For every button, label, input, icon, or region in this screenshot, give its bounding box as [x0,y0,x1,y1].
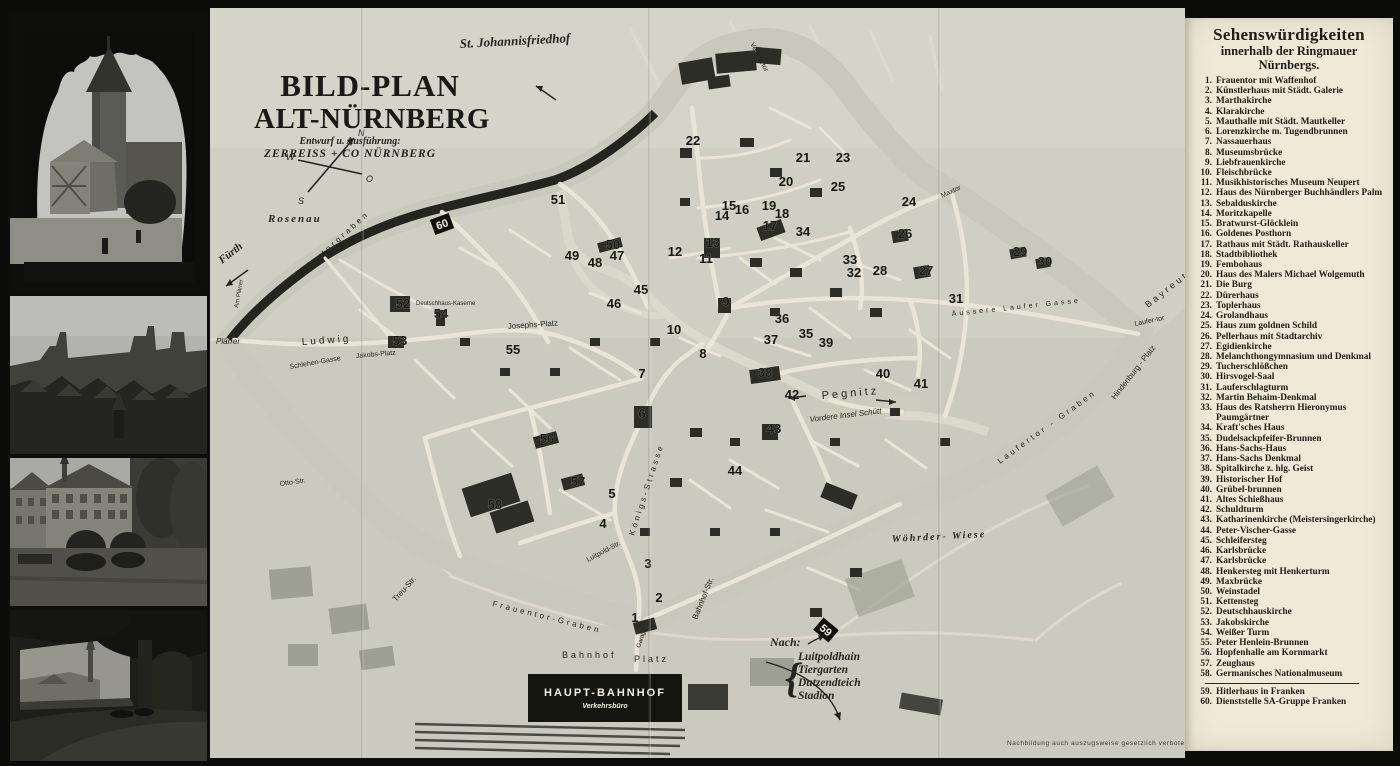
legend-item-label: Hans-Sachs-Haus [1216,444,1387,454]
legend-item-number: 50. [1195,587,1212,597]
legend-item-4: 4.Klarakirche [1195,107,1387,117]
legend-item-label: Katharinenkirche (Meistersingerkirche) [1216,515,1387,525]
map-marker-21: 21 [796,150,810,165]
legend-item-3: 3.Marthakirche [1195,96,1387,106]
map-panel: HAUPT-BAHNHOF Verkehrsbüro N S W O BILD-… [210,8,1185,758]
legend-item-label: Schuldturm [1216,505,1387,515]
nach-intro: Nach: [769,635,801,649]
legend-item-41: 41.Altes Schießhaus [1195,495,1387,505]
legend-item-label: Weißer Turm [1216,628,1387,638]
legend-item-21: 21.Die Burg [1195,280,1387,290]
legend-item-number: 27. [1195,342,1212,352]
legend-subtitle-2: Nürnbergs. [1185,58,1393,72]
legend-item-54: 54.Weißer Turm [1195,628,1387,638]
legend-list: 1.Frauentor mit Waffenhof2.Künstlerhaus … [1185,75,1393,707]
map-marker-28: 28 [873,263,887,278]
map-label: Bahnhof [562,650,617,660]
legend-item-number: 33. [1195,403,1212,423]
map-marker-35: 35 [799,326,813,341]
legend-item-label: Karlsbrücke [1216,546,1387,556]
legend-item-number: 40. [1195,485,1212,495]
legend-item-number: 23. [1195,301,1212,311]
legend-item-number: 20. [1195,270,1212,280]
legend-item-14: 14.Moritzkapelle [1195,209,1387,219]
map-subtitle-1: Entwurf u. Ausführung: [298,136,400,147]
legend-item-25: 25.Haus zum goldnen Schild [1195,321,1387,331]
legend-item-number: 42. [1195,505,1212,515]
photo-sinwellturm-through-arch [10,12,207,294]
legend-item-8: 8.Museumsbrücke [1195,148,1387,158]
legend-item-number: 1. [1195,76,1212,86]
legend-item-23: 23.Toplerhaus [1195,301,1387,311]
legend-item-number: 57. [1195,659,1212,669]
legend-item-label: Grübel-brunnen [1216,485,1387,495]
map-marker-7: 7 [638,366,645,381]
map-marker-12: 12 [668,244,682,259]
map-marker-33: 33 [843,252,857,267]
legend-item-number: 48. [1195,567,1212,577]
legend-item-number: 3. [1195,96,1212,106]
legend-item-11: 11.Musikhistorisches Museum Neupert [1195,178,1387,188]
photo-heilig-geist-spital [10,458,207,606]
nach-destination: Tiergarten [798,664,848,676]
legend-item-number: 39. [1195,475,1212,485]
legend-item-number: 2. [1195,86,1212,96]
legend-item-33: 33.Haus des Ratsherrn Hieronymus Paumgär… [1195,403,1387,423]
legend-item-number: 38. [1195,464,1212,474]
legend-item-44: 44.Peter-Vischer-Gasse [1195,526,1387,536]
legend-item-label: Pellerhaus mit Stadtarchiv [1216,332,1387,342]
legend-item-label: Die Burg [1216,280,1387,290]
map-marker-43: 43 [767,421,781,436]
legend-item-label: Lorenzkirche m. Tugendbrunnen [1216,127,1387,137]
legend-item-label: Mauthalle mit Städt. Mautkeller [1216,117,1387,127]
scanned-leaflet: HAUPT-BAHNHOF Verkehrsbüro N S W O BILD-… [0,0,1400,766]
legend-item-number: 12. [1195,188,1212,198]
map-marker-37: 37 [764,332,778,347]
legend-item-number: 32. [1195,393,1212,403]
legend-title: Sehenswürdigkeiten [1185,18,1393,44]
legend-item-label: Goldenes Posthorn [1216,229,1387,239]
legend-item-9: 9.Liebfrauenkirche [1195,158,1387,168]
legend-item-number: 31. [1195,383,1212,393]
legend-item-48: 48.Henkersteg mit Henkerturm [1195,567,1387,577]
map-marker-49: 49 [565,248,579,263]
map-marker-6: 6 [638,406,645,421]
legend-panel: Sehenswürdigkeiten innerhalb der Ringmau… [1185,18,1393,751]
legend-item-28: 28.Melanchthongymnasium und Denkmal [1195,352,1387,362]
map-marker-41: 41 [914,376,928,391]
map-subtitle-2: ZERREISS + CO NÜRNBERG [263,146,436,160]
map-marker-54: 54 [434,306,449,321]
legend-item-number: 6. [1195,127,1212,137]
map-marker-58: 58 [488,497,502,512]
legend-item-label: Henkersteg mit Henkerturm [1216,567,1387,577]
map-marker-34: 34 [796,224,811,239]
legend-item-7: 7.Nassauerhaus [1195,137,1387,147]
legend-item-34: 34.Kraft'sches Haus [1195,423,1387,433]
legend-item-number: 37. [1195,454,1212,464]
map-marker-16: 16 [735,202,749,217]
legend-item-label: Melanchthongymnasium und Denkmal [1216,352,1387,362]
map-marker-5: 5 [608,486,615,501]
legend-item-label: Moritzkapelle [1216,209,1387,219]
legend-item-number: 18. [1195,250,1212,260]
legend-item-number: 60. [1195,697,1212,707]
legend-item-number: 13. [1195,199,1212,209]
legend-item-31: 31.Lauferschlagturm [1195,383,1387,393]
legend-item-number: 44. [1195,526,1212,536]
legend-item-51: 51.Kettensteg [1195,597,1387,607]
map-marker-38: 38 [758,365,772,380]
map-marker-57: 57 [571,474,585,489]
compass-o: O [366,174,373,184]
map-label: Platz [634,654,669,664]
legend-item-label: Haus zum goldnen Schild [1216,321,1387,331]
photo-3-art [10,458,207,606]
legend-item-label: Hopfenhalle am Kornmarkt [1216,648,1387,658]
legend-item-label: Tucherschlößchen [1216,362,1387,372]
legend-item-label: Egidienkirche [1216,342,1387,352]
legend-item-37: 37.Hans-Sachs Denkmal [1195,454,1387,464]
legend-item-number: 35. [1195,434,1212,444]
legend-item-24: 24.Grolandhaus [1195,311,1387,321]
legend-item-label: Kettensteg [1216,597,1387,607]
legend-item-number: 26. [1195,332,1212,342]
legend-item-12: 12.Haus des Nürnberger Buchhändlers Palm [1195,188,1387,198]
legend-item-label: Haus des Nürnberger Buchhändlers Palm [1216,188,1387,198]
legend-item-label: Schleifersteg [1216,536,1387,546]
legend-item-number: 43. [1195,515,1212,525]
legend-item-15: 15.Bratwurst-Glöcklein [1195,219,1387,229]
legend-item-50: 50.Weinstadel [1195,587,1387,597]
legend-item-label: Grolandhaus [1216,311,1387,321]
photo-park-terrace [10,610,207,761]
map-marker-1: 1 [631,610,638,625]
legend-item-label: Frauentor mit Waffenhof [1216,76,1387,86]
legend-item-label: Klarakirche [1216,107,1387,117]
photo-2-art [10,296,207,454]
map-marker-19: 19 [762,198,776,213]
legend-item-label: Musikhistorisches Museum Neupert [1216,178,1387,188]
legend-item-number: 4. [1195,107,1212,117]
legend-divider [1205,683,1359,684]
map-marker-51: 51 [551,192,565,207]
legend-item-label: Museumsbrücke [1216,148,1387,158]
legend-item-number: 34. [1195,423,1212,433]
map-marker-44: 44 [728,463,743,478]
map-marker-30: 30 [1038,254,1052,269]
legend-item-30: 30.Hirsvogel-Saal [1195,372,1387,382]
legend-item-label: Jakobskirche [1216,618,1387,628]
map-marker-39: 39 [819,335,833,350]
legend-item-number: 8. [1195,148,1212,158]
legend-item-39: 39.Historischer Hof [1195,475,1387,485]
legend-item-number: 11. [1195,178,1212,188]
legend-item-label: Bratwurst-Glöcklein [1216,219,1387,229]
legend-item-56: 56.Hopfenhalle am Kornmarkt [1195,648,1387,658]
map-marker-36: 36 [775,311,789,326]
legend-item-16: 16.Goldenes Posthorn [1195,229,1387,239]
legend-item-number: 25. [1195,321,1212,331]
fold-crease-1 [361,8,364,758]
legend-item-label: Rathaus mit Städt. Rathauskeller [1216,240,1387,250]
legend-item-6: 6.Lorenzkirche m. Tugendbrunnen [1195,127,1387,137]
photo-4-art [10,610,207,761]
legend-item-number: 41. [1195,495,1212,505]
map-marker-2: 2 [655,590,662,605]
legend-item-number: 52. [1195,607,1212,617]
legend-item-49: 49.Maxbrücke [1195,577,1387,587]
legend-item-number: 47. [1195,556,1212,566]
legend-item-label: Marthakirche [1216,96,1387,106]
fine-print: Nachbildung auch auszugsweise gesetzlich… [1007,740,1185,747]
legend-item-number: 30. [1195,372,1212,382]
map-marker-40: 40 [876,366,890,381]
legend-item-label: Hitlerhaus in Franken [1216,687,1387,697]
legend-item-27: 27.Egidienkirche [1195,342,1387,352]
legend-item-number: 55. [1195,638,1212,648]
legend-item-label: Zeughaus [1216,659,1387,669]
legend-item-35: 35.Dudelsackpfeifer-Brunnen [1195,434,1387,444]
photo-strip [8,8,210,757]
map-marker-13: 13 [706,235,720,250]
map-marker-52: 52 [396,296,410,311]
legend-item-20: 20.Haus des Malers Michael Wolgemuth [1195,270,1387,280]
legend-item-number: 58. [1195,669,1212,679]
legend-item-60: 60.Dienststelle SA-Gruppe Franken [1195,697,1387,707]
map-marker-42: 42 [785,387,799,402]
map-marker-45: 45 [634,282,648,297]
map-marker-56: 56 [540,431,554,446]
map-marker-29: 29 [1013,244,1027,259]
legend-item-label: Deutschhauskirche [1216,607,1387,617]
legend-item-label: Martin Behaim-Denkmal [1216,393,1387,403]
legend-item-label: Kraft'sches Haus [1216,423,1387,433]
nach-destination: Luitpoldhain [797,651,860,663]
legend-item-36: 36.Hans-Sachs-Haus [1195,444,1387,454]
map-marker-20: 20 [779,174,793,189]
fold-crease-2 [648,8,651,758]
legend-item-label: Liebfrauenkirche [1216,158,1387,168]
legend-item-number: 54. [1195,628,1212,638]
legend-item-label: Toplerhaus [1216,301,1387,311]
legend-item-number: 46. [1195,546,1212,556]
legend-item-number: 24. [1195,311,1212,321]
legend-item-number: 16. [1195,229,1212,239]
legend-item-26: 26.Pellerhaus mit Stadtarchiv [1195,332,1387,342]
map-marker-23: 23 [836,150,850,165]
legend-item-number: 59. [1195,687,1212,697]
legend-item-number: 45. [1195,536,1212,546]
legend-item-number: 21. [1195,280,1212,290]
map-marker-25: 25 [831,179,845,194]
legend-item-label: Karlsbrücke [1216,556,1387,566]
legend-item-label: Dürerhaus [1216,291,1387,301]
legend-item-label: Fleischbrücke [1216,168,1387,178]
legend-item-number: 53. [1195,618,1212,628]
legend-item-label: Altes Schießhaus [1216,495,1387,505]
map-marker-22: 22 [686,133,700,148]
legend-item-number: 56. [1195,648,1212,658]
legend-item-18: 18.Stadtbibliothek [1195,250,1387,260]
legend-item-number: 5. [1195,117,1212,127]
fold-crease-3 [938,8,941,758]
legend-item-number: 28. [1195,352,1212,362]
legend-item-13: 13.Sebalduskirche [1195,199,1387,209]
nach-destination: Dutzendteich [797,677,861,689]
legend-item-number: 22. [1195,291,1212,301]
legend-item-10: 10.Fleischbrücke [1195,168,1387,178]
map-label: Rosenau [267,213,322,225]
legend-item-19: 19.Fembohaus [1195,260,1387,270]
legend-item-32: 32.Martin Behaim-Denkmal [1195,393,1387,403]
legend-item-42: 42.Schuldturm [1195,505,1387,515]
legend-item-number: 9. [1195,158,1212,168]
legend-item-47: 47.Karlsbrücke [1195,556,1387,566]
legend-item-59: 59.Hitlerhaus in Franken [1195,687,1387,697]
legend-item-number: 29. [1195,362,1212,372]
legend-item-40: 40.Grübel-brunnen [1195,485,1387,495]
map-label: Plärrer [216,337,240,346]
legend-item-label: Fembohaus [1216,260,1387,270]
legend-item-label: Haus des Ratsherrn Hieronymus Paumgärtne… [1216,403,1387,423]
legend-item-label: Peter-Vischer-Gasse [1216,526,1387,536]
legend-item-label: Historischer Hof [1216,475,1387,485]
map-title-line2: ALT-NÜRNBERG [254,103,490,135]
photo-castle-skyline [10,296,207,454]
map-marker-53: 53 [393,333,407,348]
map-marker-46: 46 [607,296,621,311]
map-marker-48: 48 [588,255,602,270]
legend-item-label: Peter Henlein-Brunnen [1216,638,1387,648]
legend-item-number: 10. [1195,168,1212,178]
legend-item-label: Dudelsackpfeifer-Brunnen [1216,434,1387,444]
photo-1-art [10,12,207,294]
verkehrsbuero-label: Verkehrsbüro [582,703,628,710]
legend-item-label: Dienststelle SA-Gruppe Franken [1216,697,1387,707]
map-marker-31: 31 [949,291,963,306]
legend-item-1: 1.Frauentor mit Waffenhof [1195,76,1387,86]
legend-item-45: 45.Schleifersteg [1195,536,1387,546]
legend-item-52: 52.Deutschhauskirche [1195,607,1387,617]
legend-item-17: 17.Rathaus mit Städt. Rathauskeller [1195,240,1387,250]
legend-item-number: 7. [1195,137,1212,147]
map-marker-18: 18 [775,206,789,221]
legend-item-number: 36. [1195,444,1212,454]
legend-item-label: Germanisches Nationalmuseum [1216,669,1387,679]
map-marker-24: 24 [902,194,917,209]
legend-item-label: Spitalkirche z. hlg. Geist [1216,464,1387,474]
legend-item-number: 14. [1195,209,1212,219]
map-marker-55: 55 [506,342,520,357]
city-map: HAUPT-BAHNHOF Verkehrsbüro N S W O BILD-… [210,8,1185,758]
legend-item-label: Lauferschlagturm [1216,383,1387,393]
legend-item-29: 29.Tucherschlößchen [1195,362,1387,372]
legend-item-57: 57.Zeughaus [1195,659,1387,669]
legend-item-2: 2.Künstlerhaus mit Städt. Galerie [1195,86,1387,96]
legend-item-label: Maxbrücke [1216,577,1387,587]
legend-item-number: 51. [1195,597,1212,607]
legend-item-label: Stadtbibliothek [1216,250,1387,260]
legend-item-58: 58.Germanisches Nationalmuseum [1195,669,1387,679]
legend-item-53: 53.Jakobskirche [1195,618,1387,628]
legend-item-label: Hirsvogel-Saal [1216,372,1387,382]
map-marker-8: 8 [699,346,706,361]
legend-item-label: Haus des Malers Michael Wolgemuth [1216,270,1387,280]
legend-item-55: 55.Peter Henlein-Brunnen [1195,638,1387,648]
legend-item-22: 22.Dürerhaus [1195,291,1387,301]
legend-item-label: Hans-Sachs Denkmal [1216,454,1387,464]
legend-item-label: Sebalduskirche [1216,199,1387,209]
map-marker-26: 26 [898,226,912,241]
legend-item-number: 15. [1195,219,1212,229]
legend-item-number: 19. [1195,260,1212,270]
legend-item-5: 5.Mauthalle mit Städt. Mautkeller [1195,117,1387,127]
legend-item-43: 43.Katharinenkirche (Meistersingerkirche… [1195,515,1387,525]
map-marker-9: 9 [722,294,729,309]
map-title-line1: BILD-PLAN [280,68,460,103]
map-marker-50: 50 [606,237,620,252]
map-marker-32: 32 [847,265,861,280]
compass-s: S [298,196,304,206]
legend-subtitle-1: innerhalb der Ringmauer [1185,44,1393,58]
map-marker-11: 11 [699,251,713,266]
legend-item-38: 38.Spitalkirche z. hlg. Geist [1195,464,1387,474]
map-marker-4: 4 [599,516,607,531]
legend-item-label: Künstlerhaus mit Städt. Galerie [1216,86,1387,96]
legend-item-46: 46.Karlsbrücke [1195,546,1387,556]
legend-item-label: Weinstadel [1216,587,1387,597]
legend-item-number: 49. [1195,577,1212,587]
map-marker-10: 10 [667,322,681,337]
legend-item-number: 17. [1195,240,1212,250]
nach-destination: Stadion [798,690,834,702]
map-marker-27: 27 [919,263,933,278]
legend-item-label: Nassauerhaus [1216,137,1387,147]
